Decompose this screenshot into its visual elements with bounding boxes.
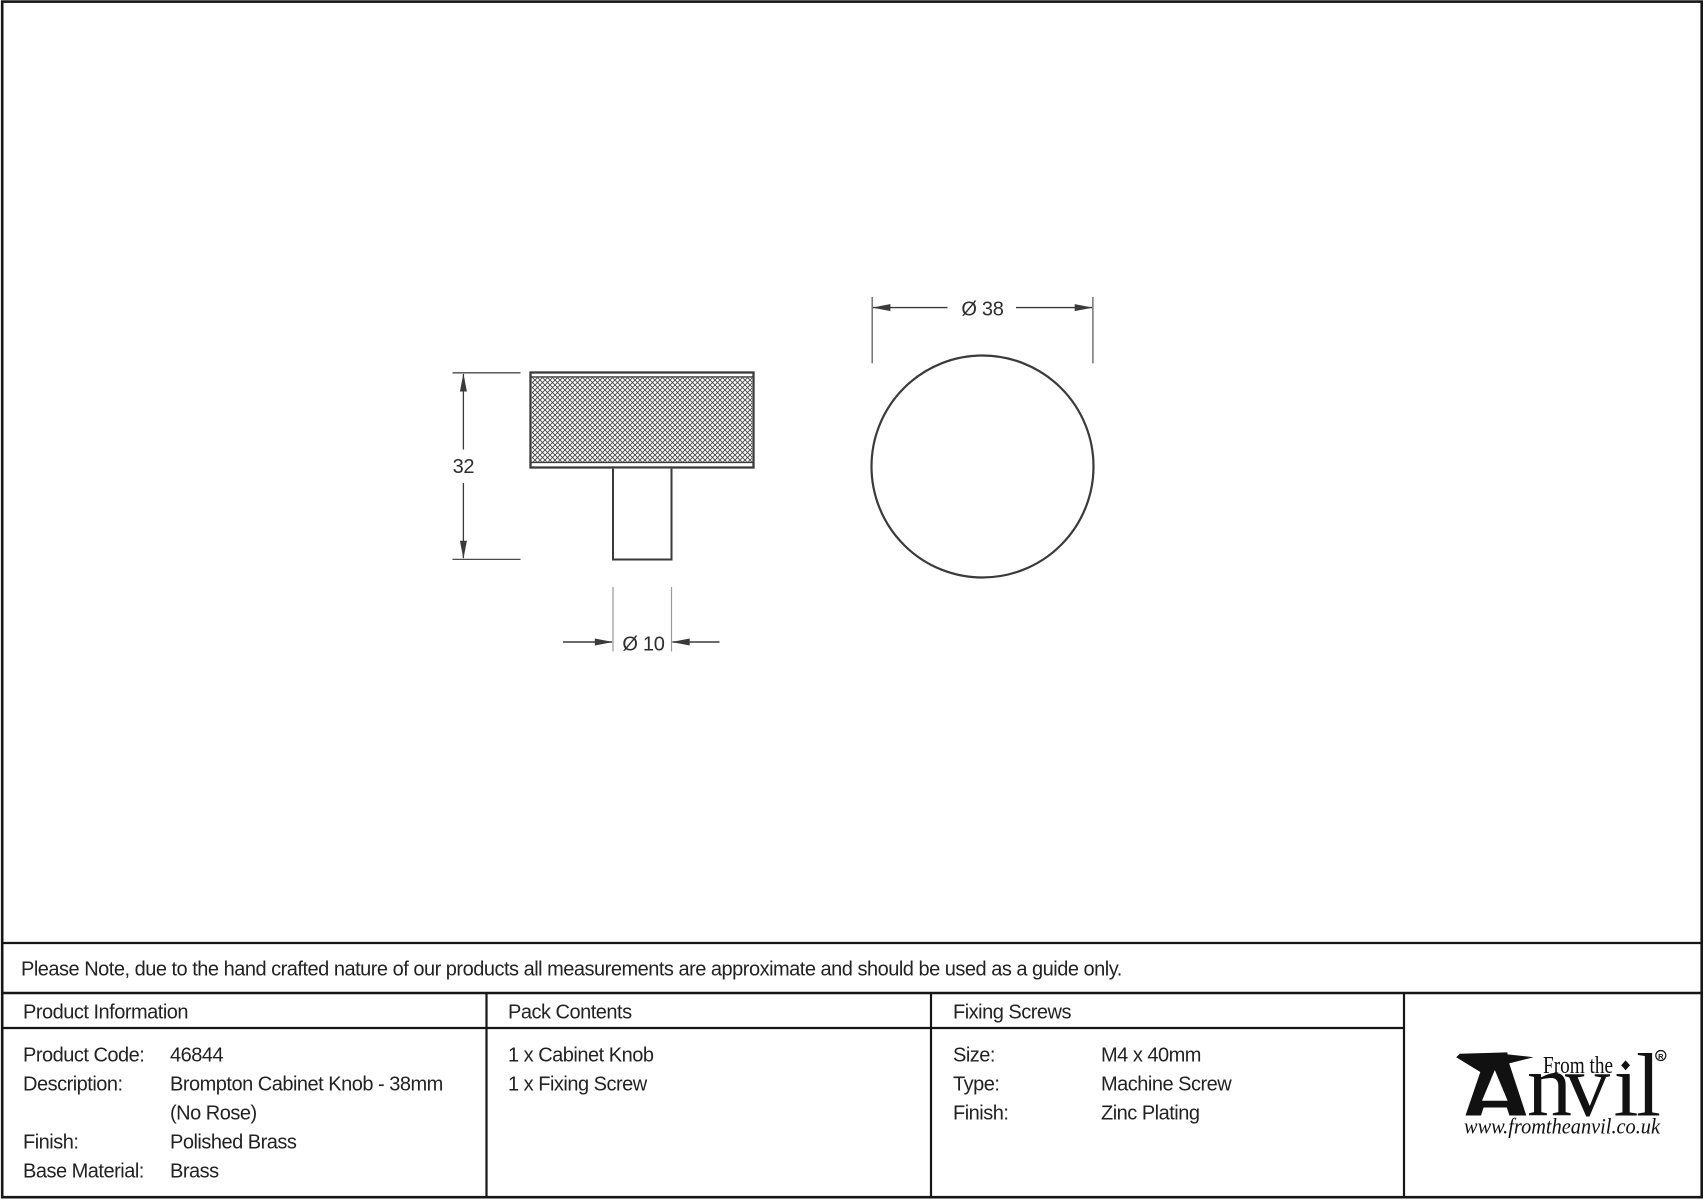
- svg-text:Please Note, due to the hand c: Please Note, due to the hand crafted nat…: [21, 959, 1122, 981]
- svg-text:Pack Contents: Pack Contents: [508, 1002, 632, 1024]
- svg-text:Ø 10: Ø 10: [622, 634, 664, 656]
- svg-text:Polished Brass: Polished Brass: [170, 1132, 297, 1154]
- svg-text:1 x Cabinet Knob: 1 x Cabinet Knob: [508, 1045, 654, 1067]
- svg-text:Machine Screw: Machine Screw: [1101, 1074, 1232, 1096]
- svg-text:Product Code:: Product Code:: [23, 1045, 144, 1067]
- svg-text:(No Rose): (No Rose): [170, 1103, 257, 1125]
- svg-text:Finish:: Finish:: [23, 1132, 78, 1154]
- svg-text:Size:: Size:: [953, 1045, 995, 1067]
- svg-text:32: 32: [453, 456, 475, 478]
- svg-text:Fixing Screws: Fixing Screws: [953, 1002, 1071, 1024]
- svg-text:R: R: [1658, 1052, 1664, 1061]
- svg-text:Brass: Brass: [170, 1161, 219, 1183]
- svg-text:Description:: Description:: [23, 1074, 123, 1096]
- svg-text:M4 x 40mm: M4 x 40mm: [1101, 1045, 1201, 1067]
- svg-text:Brompton Cabinet Knob - 38mm: Brompton Cabinet Knob - 38mm: [170, 1074, 443, 1096]
- svg-text:1 x Fixing Screw: 1 x Fixing Screw: [508, 1074, 648, 1096]
- svg-text:Base Material:: Base Material:: [23, 1161, 144, 1183]
- svg-text:Ø 38: Ø 38: [961, 299, 1003, 321]
- svg-text:Type:: Type:: [953, 1074, 999, 1096]
- svg-text:Finish:: Finish:: [953, 1103, 1008, 1125]
- svg-text:46844: 46844: [170, 1045, 223, 1067]
- svg-text:Product Information: Product Information: [23, 1002, 188, 1024]
- svg-text:www.fromtheanvil.co.uk: www.fromtheanvil.co.uk: [1464, 1114, 1661, 1139]
- svg-text:Zinc Plating: Zinc Plating: [1101, 1103, 1200, 1125]
